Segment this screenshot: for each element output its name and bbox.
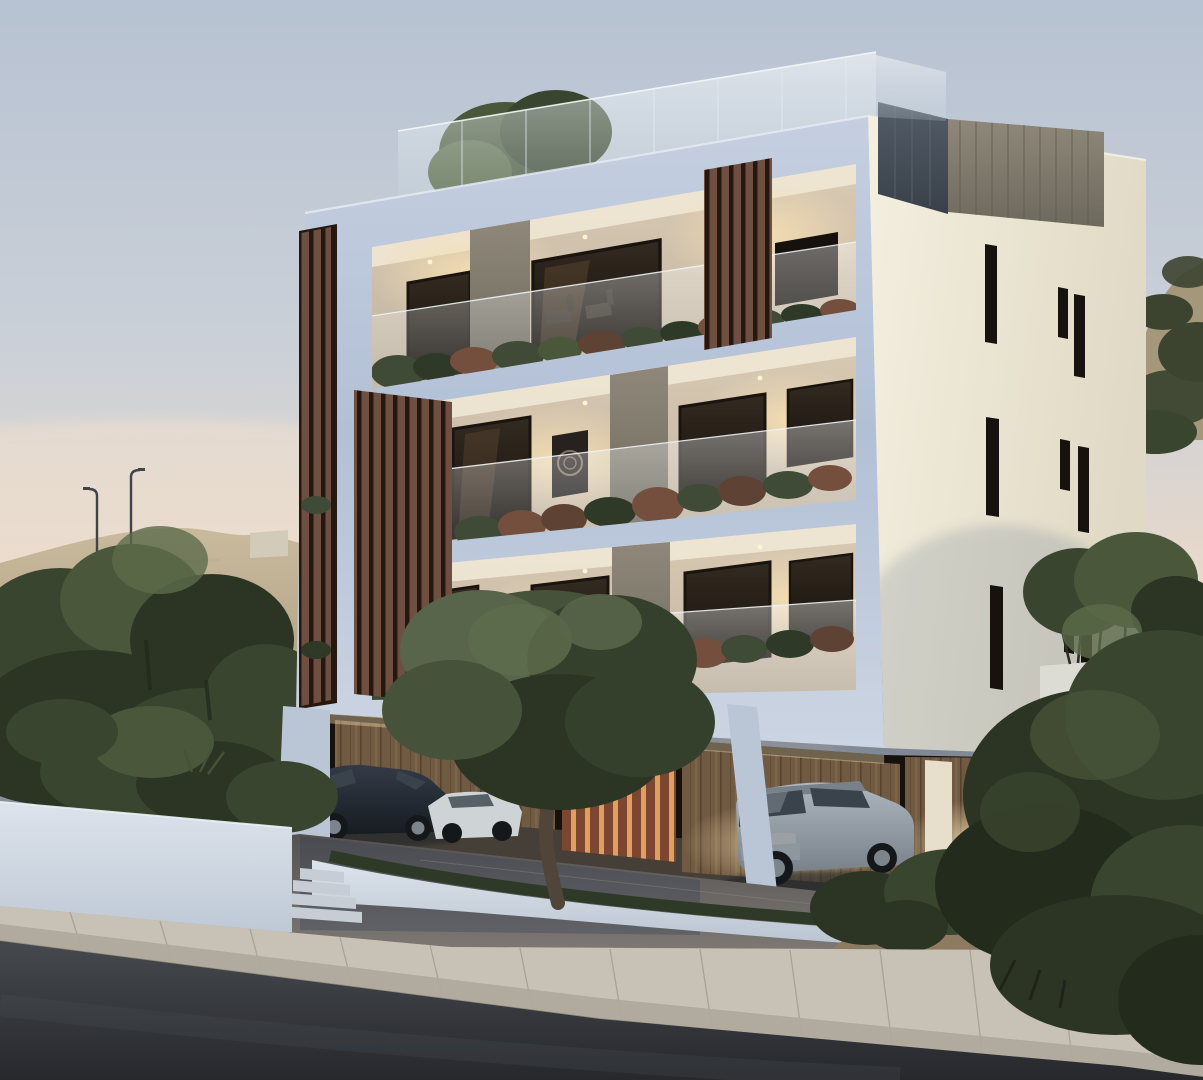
retaining-wall-block: [250, 530, 288, 558]
louver-screen-floor3: [704, 158, 772, 350]
left-louver-column: [299, 224, 337, 709]
scene-canvas: Modern three-storey apartment building w…: [0, 0, 1203, 1080]
architectural-rendering: Modern three-storey apartment building w…: [0, 0, 1203, 1080]
